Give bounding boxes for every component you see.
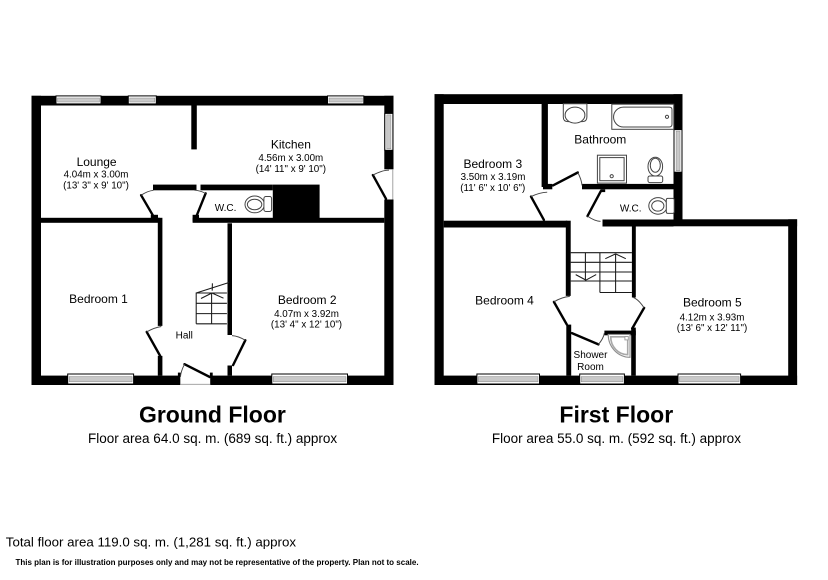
svg-text:Bedroom 5: Bedroom 5 xyxy=(683,295,742,309)
svg-text:(13' 3" x 9' 10"): (13' 3" x 9' 10") xyxy=(63,181,129,192)
svg-text:Floor area 64.0 sq. m. (689 sq: Floor area 64.0 sq. m. (689 sq. ft.) app… xyxy=(88,431,337,446)
svg-text:Room: Room xyxy=(577,362,604,373)
svg-text:4.56m x 3.00m: 4.56m x 3.00m xyxy=(258,153,323,164)
svg-text:This plan is for illustration: This plan is for illustration purposes o… xyxy=(16,558,419,567)
svg-text:3.50m x 3.19m: 3.50m x 3.19m xyxy=(461,172,526,183)
svg-text:(14' 11" x 9' 10"): (14' 11" x 9' 10") xyxy=(256,164,326,175)
svg-text:First Floor: First Floor xyxy=(559,402,673,428)
svg-text:Bedroom 2: Bedroom 2 xyxy=(278,293,337,307)
svg-text:Total floor area 119.0 sq. m.: Total floor area 119.0 sq. m. (1,281 sq.… xyxy=(6,535,297,550)
svg-text:Hall: Hall xyxy=(176,330,193,341)
svg-text:Ground Floor: Ground Floor xyxy=(139,402,286,428)
svg-text:Bedroom 4: Bedroom 4 xyxy=(475,293,534,307)
svg-text:W.C.: W.C. xyxy=(620,203,642,214)
svg-text:Lounge: Lounge xyxy=(77,155,117,169)
svg-text:Bedroom 3: Bedroom 3 xyxy=(463,157,522,171)
svg-text:Shower: Shower xyxy=(574,350,609,361)
svg-text:(11' 6" x 10' 6"): (11' 6" x 10' 6") xyxy=(460,183,525,194)
svg-text:Floor area 55.0 sq. m. (592 sq: Floor area 55.0 sq. m. (592 sq. ft.) app… xyxy=(492,431,741,446)
svg-text:4.07m x 3.92m: 4.07m x 3.92m xyxy=(274,309,339,320)
svg-text:Bathroom: Bathroom xyxy=(574,133,626,147)
svg-text:Bedroom 1: Bedroom 1 xyxy=(69,292,128,306)
svg-text:(13' 4" x 12' 10"): (13' 4" x 12' 10") xyxy=(271,320,342,331)
svg-text:W.C.: W.C. xyxy=(215,203,237,214)
svg-text:(13' 6" x 12' 11"): (13' 6" x 12' 11") xyxy=(677,323,747,334)
svg-text:Kitchen: Kitchen xyxy=(271,138,311,152)
svg-text:4.12m x 3.93m: 4.12m x 3.93m xyxy=(680,312,745,323)
svg-text:4.04m x 3.00m: 4.04m x 3.00m xyxy=(64,170,129,181)
